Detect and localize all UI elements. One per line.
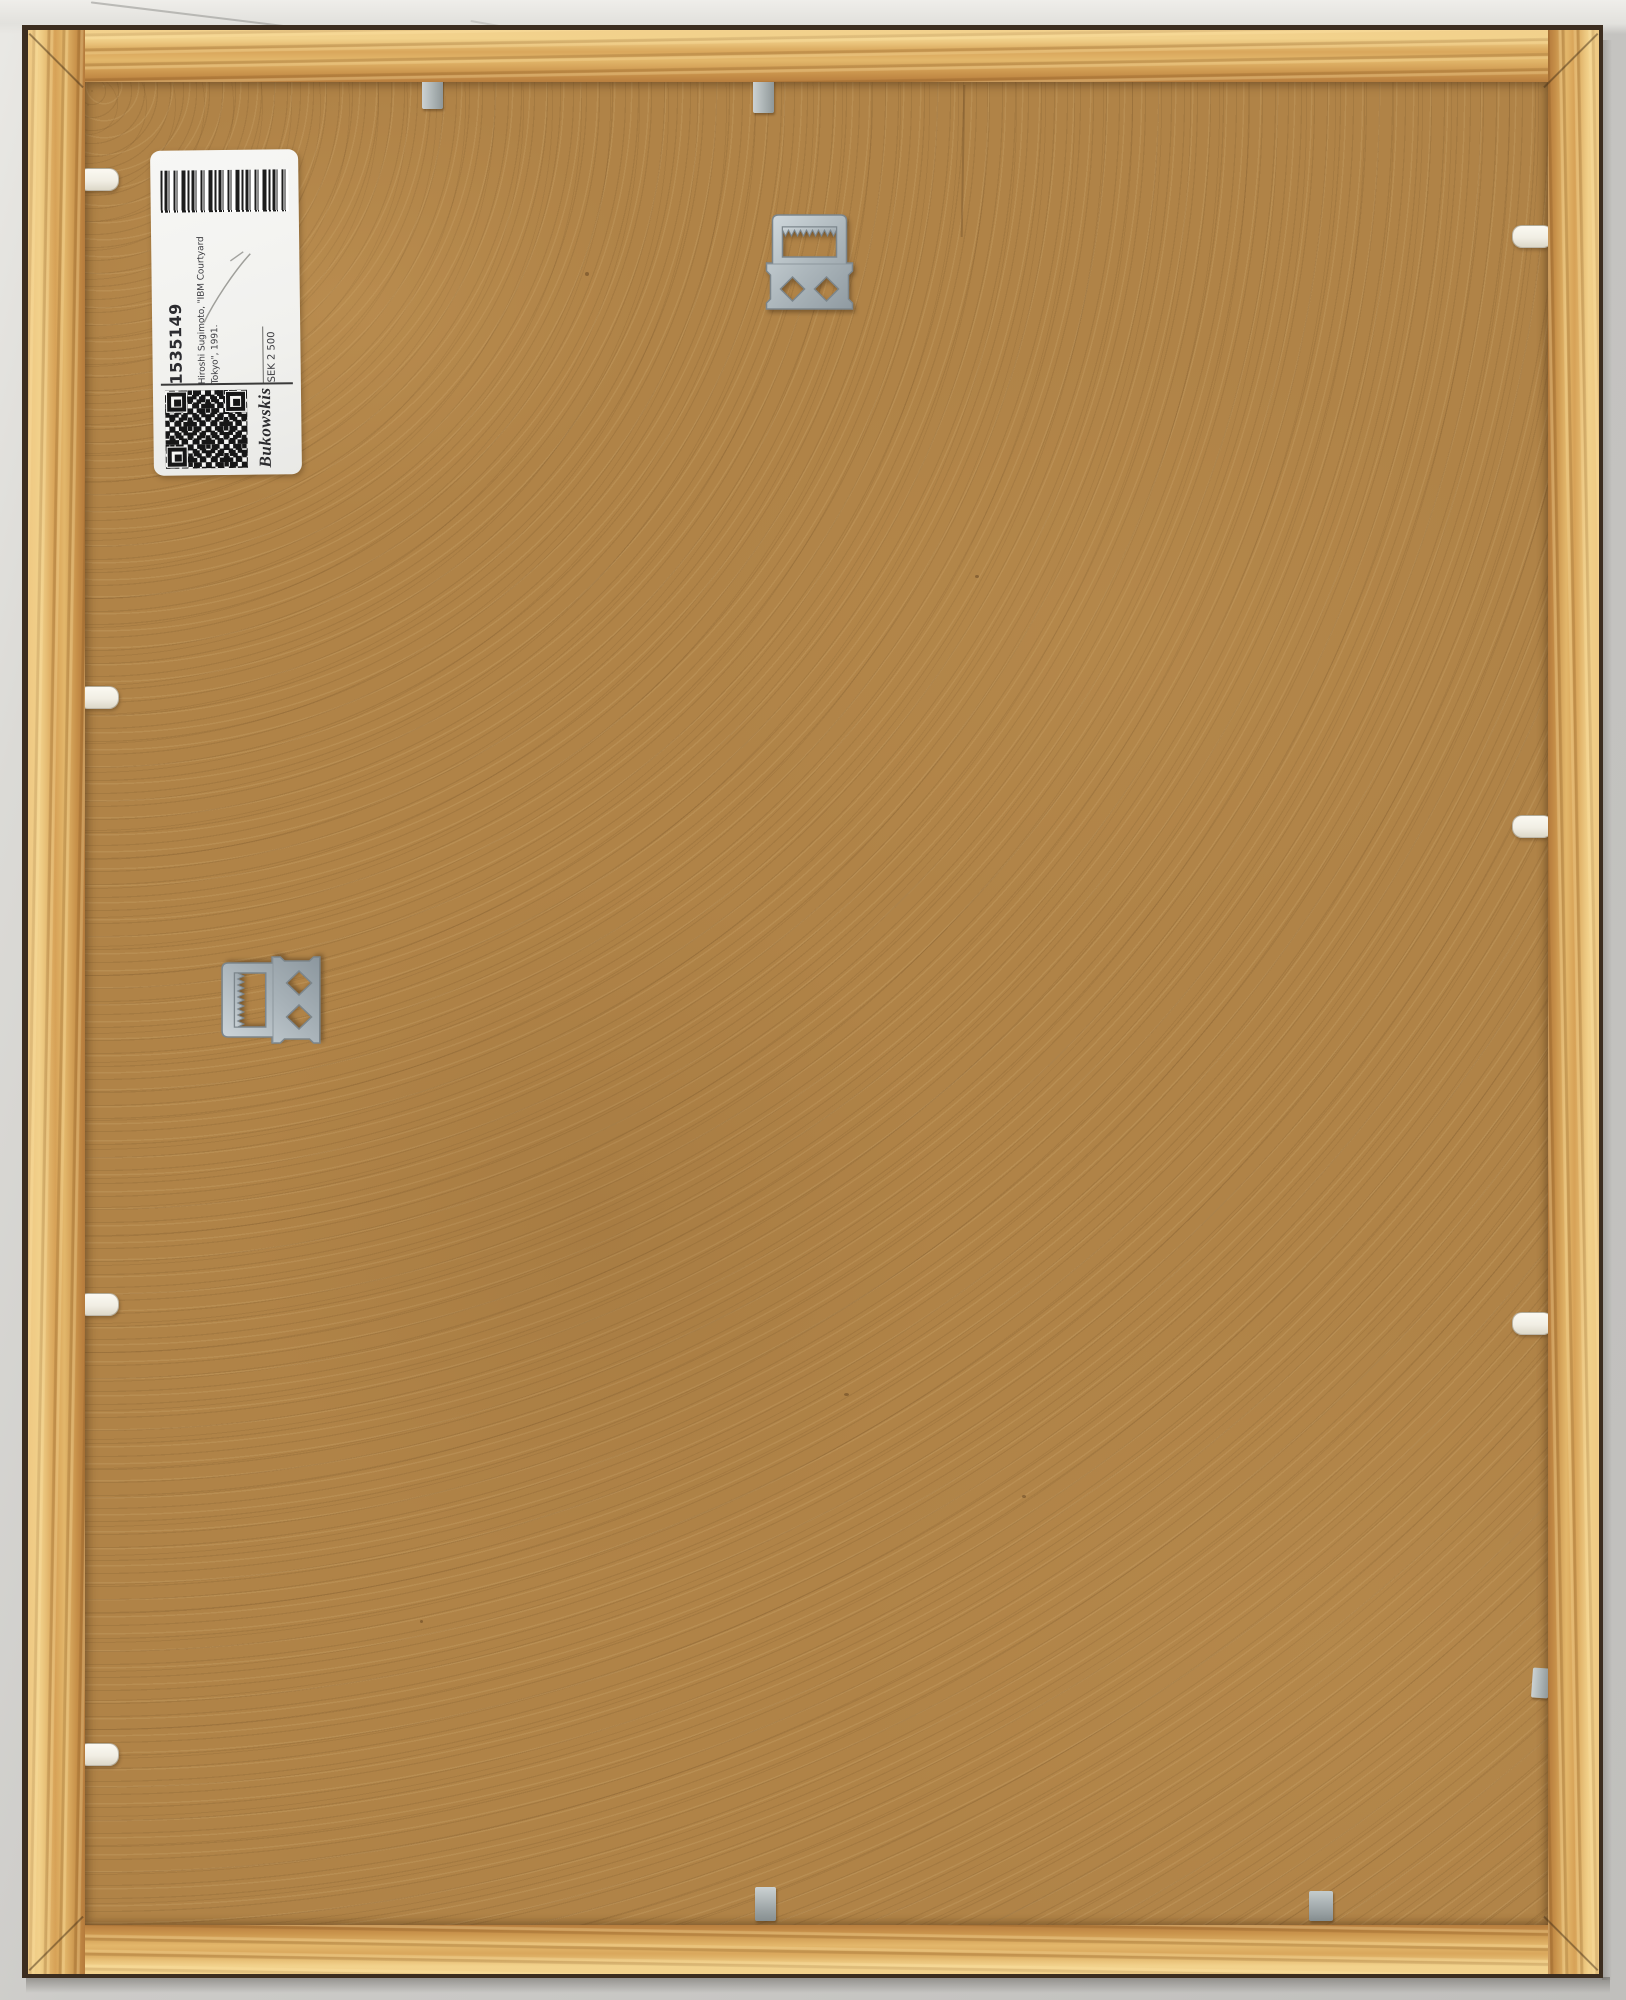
- sawtooth-hanger-icon: [220, 955, 324, 1045]
- board-speck: [1022, 1495, 1026, 1498]
- metal-clip: [753, 77, 774, 113]
- photo-frame-back-scene: { "label": { "lot_number": "1535149", "a…: [0, 0, 1626, 2000]
- frame-cast-shadow-right: [1602, 40, 1612, 1980]
- board-speck: [420, 1620, 423, 1623]
- frame-cast-shadow: [26, 1977, 1610, 1993]
- white-flexi-tab: [1512, 225, 1553, 248]
- wooden-frame: 1535149 Hiroshi Sugimoto, "IBM Courtyard…: [22, 25, 1603, 1978]
- white-flexi-tab: [1512, 1312, 1553, 1335]
- metal-clip: [1309, 1891, 1333, 1921]
- qr-finder-icon: [166, 391, 187, 412]
- board-speck: [844, 1393, 849, 1396]
- board-speck: [975, 575, 979, 578]
- frame-rail-top: [28, 30, 1599, 82]
- brand-signature: Bukowskis: [255, 389, 294, 467]
- board-speck: [585, 272, 589, 276]
- qr-code: [165, 390, 248, 469]
- frame-rail-right: [1548, 30, 1599, 1974]
- sawtooth-hanger-icon: [761, 213, 858, 313]
- frame-rail-bottom: [28, 1925, 1599, 1974]
- brand-signature-block: Bukowskis: [255, 389, 294, 467]
- qr-finder-icon: [167, 446, 188, 467]
- metal-clip: [755, 1887, 776, 1921]
- white-flexi-tab: [1512, 815, 1553, 838]
- frame-rail-left: [28, 30, 85, 1974]
- qr-finder-icon: [225, 391, 246, 412]
- auction-label: 1535149 Hiroshi Sugimoto, "IBM Courtyard…: [150, 149, 302, 476]
